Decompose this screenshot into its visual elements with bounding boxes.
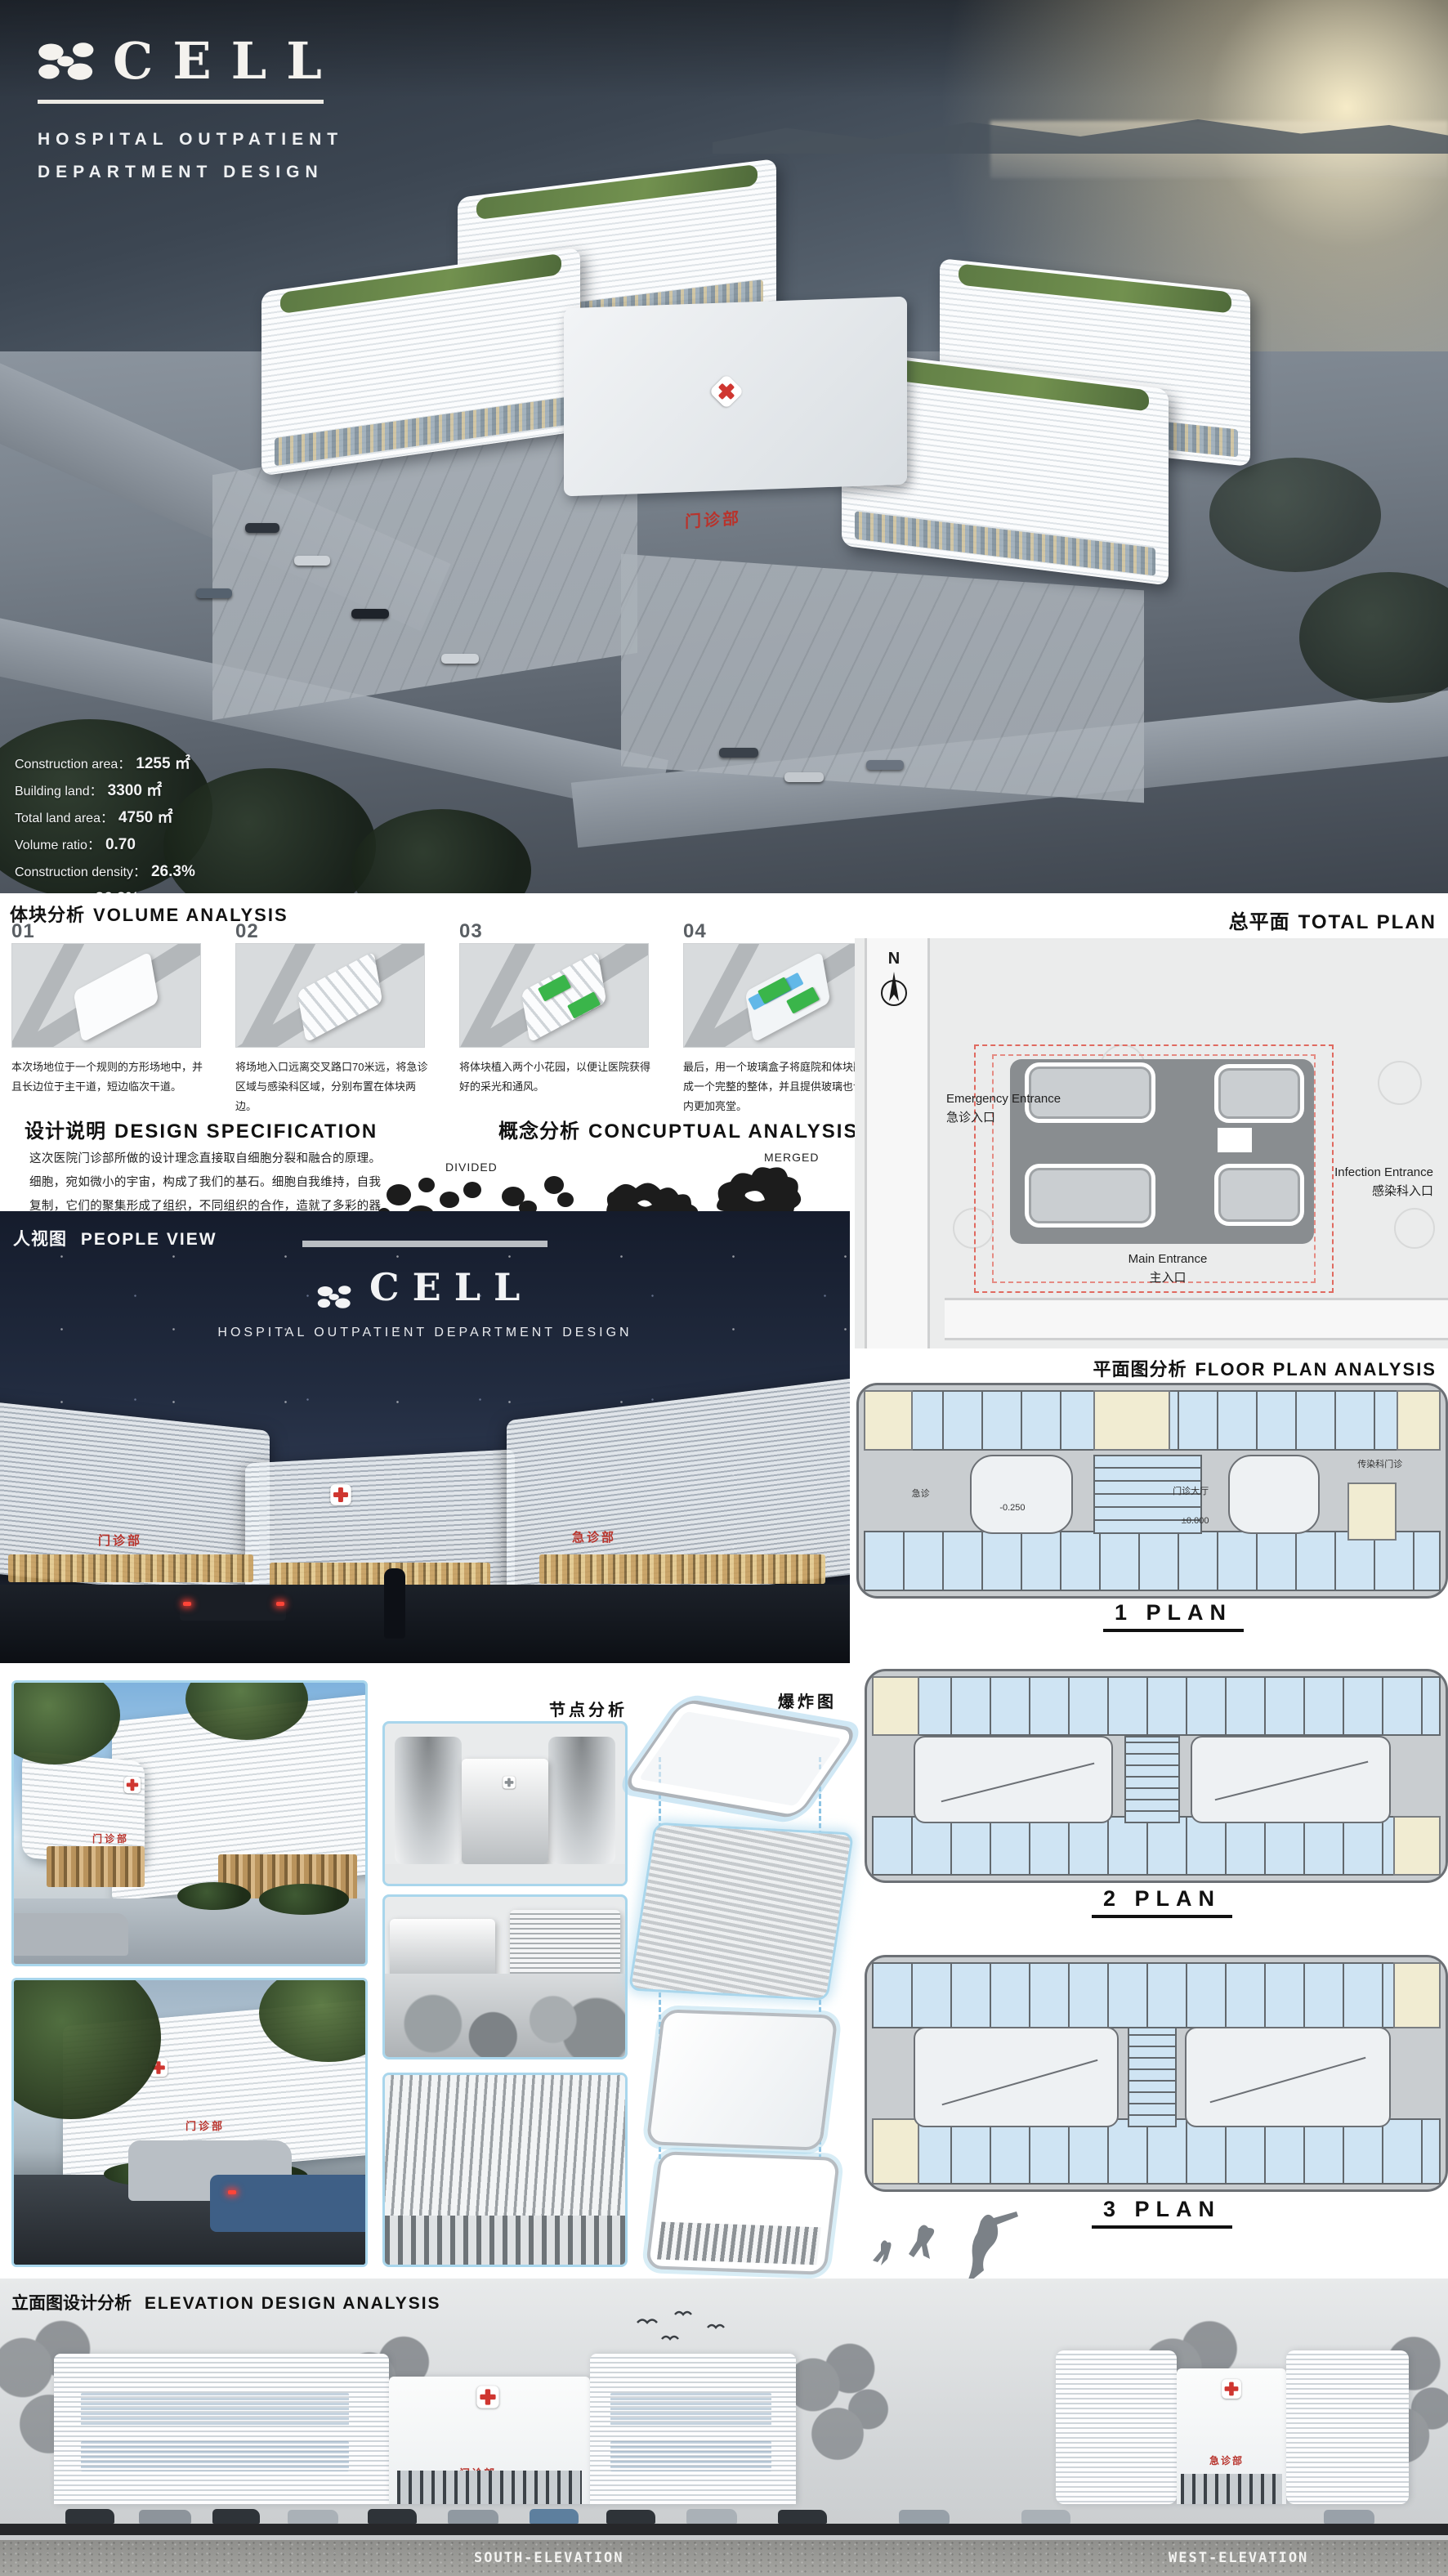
- ground-line: [0, 2524, 1448, 2535]
- car-taillight: [183, 1602, 191, 1606]
- plan-white-court: [1218, 1128, 1252, 1152]
- west-entrance-sign: 急诊部: [1209, 2453, 1244, 2467]
- wood-cladding: [47, 1846, 145, 1887]
- floor-plan-1: 急诊 门诊大厅 传染科门诊 ±0.000 -0.250: [856, 1383, 1448, 1599]
- compass-icon: [878, 968, 910, 1011]
- car-shape: [719, 748, 758, 758]
- red-cross-icon: [476, 2386, 498, 2408]
- elevation-section: 立面图设计分析 ELEVATION DESIGN ANALYSIS 门诊部: [0, 2279, 1448, 2576]
- people-view-logo: CELL HOSPITAL OUTPATIENT DEPARTMENT DESI…: [0, 1241, 850, 1340]
- plan-1-label: 1 PLAN: [1103, 1600, 1244, 1632]
- plan-rooms-bottom: [872, 1816, 1441, 1876]
- plan-core: [872, 1676, 919, 1736]
- exploded-glass-box: [646, 2009, 838, 2150]
- building-sign-right: 急诊部: [572, 1528, 616, 1545]
- plan-core: [872, 2118, 919, 2185]
- north-label: N: [878, 950, 910, 968]
- plan-hall: [1185, 2027, 1391, 2127]
- floor-plan-title-en: FLOOR PLAN ANALYSIS: [1195, 1359, 1437, 1380]
- volume-step-01: 01 本次场地位于一个规则的方形场地中，并且长边位于主干道，短边临次干道。: [11, 920, 204, 1097]
- car-shape: [245, 523, 279, 533]
- volume-step-number: 02: [235, 920, 428, 943]
- entrance-sign: 门诊部: [92, 1831, 129, 1845]
- stat-value: 1255 ㎡: [136, 755, 190, 772]
- volume-step-number: 04: [683, 920, 876, 943]
- stat-label: Construction area：: [15, 758, 131, 771]
- people-view-render: 人视图 PEOPLE VIEW CELL HOSPITAL OUTPATIENT…: [0, 1211, 850, 1663]
- total-plan-title-zh: 总平面: [1229, 911, 1290, 933]
- north-compass: N: [878, 950, 910, 1015]
- hero-aerial-render: 门诊部: [0, 0, 1448, 893]
- node-thumb-louver-detail: [382, 2073, 628, 2267]
- stat-label: Building land：: [15, 785, 103, 798]
- floor-plan-header: 平面图分析FLOOR PLAN ANALYSIS: [1093, 1355, 1437, 1381]
- exploded-view-header: 爆炸图: [778, 1688, 837, 1712]
- floor-plan-title-zh: 平面图分析: [1093, 1359, 1187, 1380]
- entrance-sign: 门诊部: [185, 2118, 225, 2133]
- plan-core: [1393, 1816, 1441, 1876]
- volume-diagram-04: [683, 943, 873, 1048]
- design-spec-title-zh: 设计说明: [25, 1120, 106, 1143]
- car-shape: [196, 588, 232, 598]
- stat-value: 3300 ㎡: [108, 782, 163, 799]
- plan-tag-level: ±0.000: [1182, 1516, 1209, 1526]
- plan-block-ne: [1214, 1064, 1304, 1123]
- car-shape: [351, 609, 389, 619]
- plan-core: [1397, 1390, 1441, 1451]
- node-thumb-entrance: [382, 1721, 628, 1886]
- elevation-title-zh: 立面图设计分析: [11, 2294, 132, 2313]
- lit-ground-floor: [539, 1554, 825, 1584]
- entrance-render-dusk: 门诊部: [11, 1978, 368, 2267]
- lit-ground-floor: [270, 1563, 490, 1587]
- plan-rooms-top: [872, 1962, 1441, 2028]
- volume-step-caption: 将场地入口远离交叉路口70米远，将急诊区域与感染科区域，分别布置在体块两边。: [235, 1058, 428, 1116]
- plan-core: [1347, 1483, 1397, 1541]
- plan-tag-level: -0.250: [999, 1503, 1025, 1513]
- elevation-title-en: ELEVATION DESIGN ANALYSIS: [145, 2294, 441, 2313]
- volume-step-04: 04 最后，用一个玻璃盒子将庭院和体块融合成一个完整的整体，并且提供玻璃也让室内…: [683, 920, 876, 1116]
- logo-title: CELL: [113, 36, 342, 87]
- volume-diagram-01: [11, 943, 201, 1048]
- presentation-board: 门诊部: [0, 0, 1448, 2576]
- entrance-sign: 门诊部: [685, 505, 741, 533]
- logo-rule: [38, 100, 324, 104]
- infection-entrance-zh: 感染科入口: [1303, 1183, 1433, 1201]
- west-elev-entrance-block: 急诊部: [1177, 2368, 1286, 2504]
- conceptual-title-zh: 概念分析: [498, 1120, 580, 1143]
- main-entrance-zh: 主入口: [1115, 1269, 1221, 1288]
- logo-subtitle-line1: HOSPITAL OUTPATIENT: [38, 123, 343, 156]
- plan-bridge: [1128, 2027, 1178, 2127]
- plan-hall: [1191, 1736, 1391, 1822]
- cell-logo-icon: [317, 1283, 355, 1311]
- red-cross-icon: [330, 1484, 351, 1505]
- stat-label: Green rate：: [15, 892, 91, 893]
- car-silhouette: [180, 1586, 286, 1621]
- wet-road: [0, 1585, 850, 1663]
- emergency-entrance-en: Emergency Entrance: [946, 1090, 1061, 1109]
- volume-step-03: 03 将体块植入两个小花园，以便让医院获得好的采光和通风。: [459, 920, 652, 1097]
- total-plan-title-en: TOTAL PLAN: [1298, 911, 1437, 933]
- emergency-entrance-label: Emergency Entrance 急诊入口: [946, 1090, 1061, 1127]
- car-taillight: [228, 2190, 236, 2194]
- design-spec-title-en: DESIGN SPECIFICATION: [114, 1120, 378, 1143]
- plan-3-label: 3 PLAN: [1092, 2197, 1232, 2229]
- plan-block-se: [1214, 1164, 1304, 1226]
- volume-step-number: 01: [11, 920, 204, 943]
- main-entrance-en: Main Entrance: [1115, 1250, 1221, 1269]
- west-elev-tower-right: [1286, 2350, 1409, 2504]
- plan-courtyard: [970, 1455, 1073, 1534]
- total-plan-header: 总平面TOTAL PLAN: [1229, 906, 1437, 934]
- conceptual-title-en: CONCUPTUAL ANALYSIS: [588, 1120, 858, 1143]
- car-shape: [294, 556, 330, 566]
- west-elev-tower-left: [1056, 2350, 1177, 2504]
- volume-step-02: 02 将场地入口远离交叉路口70米远，将急诊区域与感染科区域，分别布置在体块两边…: [235, 920, 428, 1116]
- emergency-entrance-zh: 急诊入口: [946, 1109, 1061, 1128]
- floor-plan-3: [865, 1955, 1448, 2192]
- volume-step-number: 03: [459, 920, 652, 943]
- road-horizontal: [945, 1298, 1448, 1340]
- pedestrian-silhouette: [384, 1568, 405, 1639]
- plan-hall: [914, 1736, 1114, 1822]
- main-entrance-label: Main Entrance 主入口: [1115, 1250, 1221, 1287]
- exploded-roof-slab: [620, 1698, 860, 1819]
- south-elev-left-block: [54, 2354, 389, 2504]
- car-silhouette: [11, 1913, 128, 1956]
- south-elevation-label: SOUTH-ELEVATION: [474, 2550, 624, 2566]
- node-thumb-landscape: [382, 1894, 628, 2059]
- cell-logo-icon: [38, 40, 100, 83]
- total-plan-map: N Emergency Entrance 急诊入口 Infection Entr…: [855, 938, 1448, 1348]
- red-cross-icon: [124, 1777, 141, 1793]
- plan-hall: [914, 2027, 1120, 2127]
- stat-label: Volume ratio：: [15, 839, 101, 852]
- birds-icon: [629, 2306, 744, 2355]
- infection-entrance-label: Infection Entrance 感染科入口: [1303, 1164, 1433, 1201]
- design-spec-header: 设计说明DESIGN SPECIFICATION: [25, 1115, 378, 1143]
- plan-core: [1093, 1390, 1170, 1451]
- plan-bridge: [1124, 1736, 1180, 1822]
- car-taillight: [276, 1602, 284, 1606]
- lit-ground-floor: [8, 1554, 253, 1582]
- volume-diagram-03: [459, 943, 649, 1048]
- plan-tag-infection: 传染科门诊: [1357, 1457, 1402, 1470]
- car-silhouette: [210, 2175, 368, 2232]
- south-elev-entrance-block: 门诊部: [389, 2377, 590, 2504]
- stat-label: Construction density：: [15, 865, 146, 879]
- volume-step-caption: 将体块植入两个小花园，以便让医院获得好的采光和通风。: [459, 1058, 652, 1097]
- logo-subtitle-line2: DEPARTMENT DESIGN: [38, 156, 343, 189]
- floor-plan-2: [865, 1669, 1448, 1883]
- logo-subtitle: HOSPITAL OUTPATIENT DEPARTMENT DESIGN: [0, 1326, 850, 1340]
- volume-step-caption: 本次场地位于一个规则的方形场地中，并且长边位于主干道，短边临次干道。: [11, 1058, 204, 1097]
- plan-tag-emergency: 急诊: [912, 1487, 930, 1500]
- plan-core: [864, 1390, 913, 1451]
- stat-value: 4750 ㎡: [118, 809, 173, 826]
- plan-tag-hall: 门诊大厅: [1173, 1484, 1209, 1497]
- building-sign-left: 门诊部: [98, 1532, 142, 1549]
- conceptual-header: 概念分析CONCUPTUAL ANALYSIS: [498, 1115, 858, 1143]
- stat-value: 36.2%: [96, 890, 140, 893]
- ground-band: SOUTH-ELEVATION WEST-ELEVATION: [0, 2540, 1448, 2576]
- street-view-render-day: 门诊部: [11, 1680, 368, 1966]
- stat-value: 26.3%: [151, 863, 195, 880]
- plan-2-label: 2 PLAN: [1092, 1886, 1232, 1918]
- plan-block-sw: [1025, 1164, 1155, 1228]
- project-stats: Construction area：1255 ㎡ Building land：3…: [15, 756, 195, 893]
- logo-rule: [302, 1241, 547, 1247]
- merged-label: MERGED: [764, 1151, 819, 1164]
- car-shape: [866, 760, 904, 770]
- plan-core: [1393, 1962, 1441, 2028]
- car-shape: [441, 654, 479, 664]
- red-cross-icon: [1222, 2379, 1241, 2399]
- exploded-mesh-skin: [628, 1822, 855, 2001]
- stat-value: 0.70: [105, 836, 136, 853]
- node-analysis-header: 节点分析: [549, 1697, 628, 1720]
- stat-label: Total land area：: [15, 812, 114, 825]
- exploded-louver-base: [646, 2151, 841, 2275]
- plan-rooms-top: [872, 1676, 1441, 1736]
- plan-courtyard: [1228, 1455, 1320, 1534]
- brand-logo: CELL HOSPITAL OUTPATIENT DEPARTMENT DESI…: [38, 36, 343, 189]
- volume-step-caption: 最后，用一个玻璃盒子将庭院和体块融合成一个完整的整体，并且提供玻璃也让室内更加亮…: [683, 1058, 876, 1116]
- infection-entrance-en: Infection Entrance: [1303, 1164, 1433, 1183]
- logo-title: CELL: [369, 1265, 533, 1309]
- west-elevation-label: WEST-ELEVATION: [1169, 2550, 1308, 2566]
- car-shape: [784, 772, 824, 782]
- red-cross-icon: [503, 1776, 516, 1788]
- volume-diagram-02: [235, 943, 425, 1048]
- plan-rooms-bottom: [872, 2118, 1441, 2185]
- south-elev-right-block: [590, 2354, 796, 2504]
- figure-silhouettes: [858, 2197, 1054, 2287]
